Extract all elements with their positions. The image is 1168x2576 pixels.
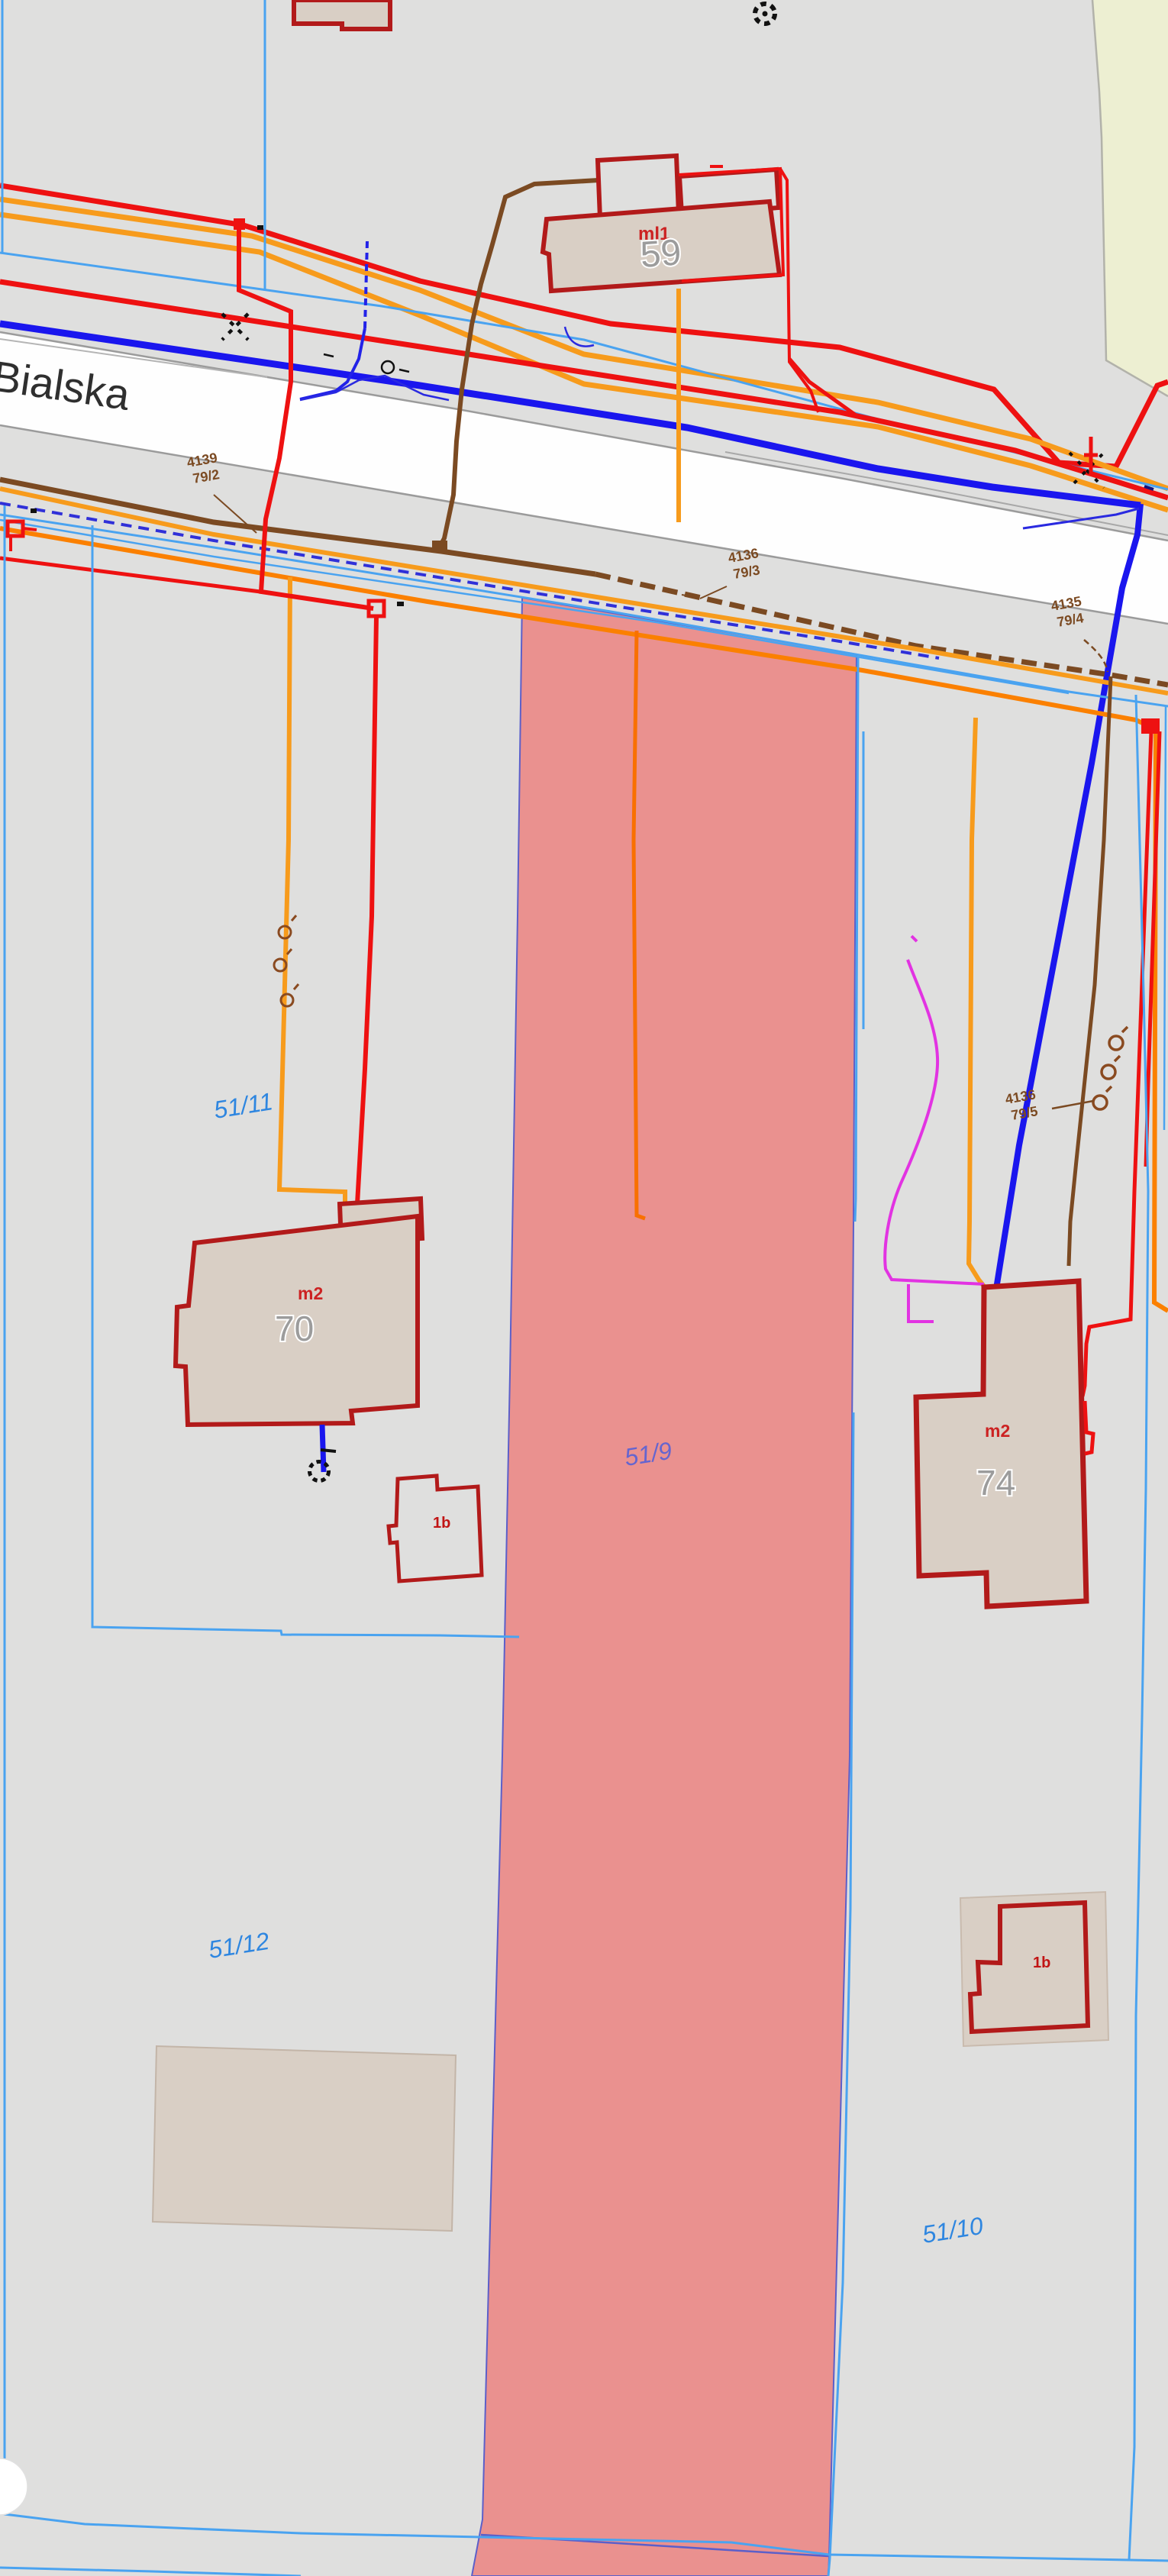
svg-text:m2: m2 xyxy=(985,1421,1010,1441)
svg-text:1b: 1b xyxy=(433,1515,450,1532)
svg-text:m2: m2 xyxy=(298,1283,323,1303)
svg-text:74: 74 xyxy=(976,1463,1015,1503)
svg-text:70: 70 xyxy=(275,1309,314,1348)
svg-text:1b: 1b xyxy=(1033,1955,1050,1971)
svg-text:59: 59 xyxy=(639,232,682,276)
